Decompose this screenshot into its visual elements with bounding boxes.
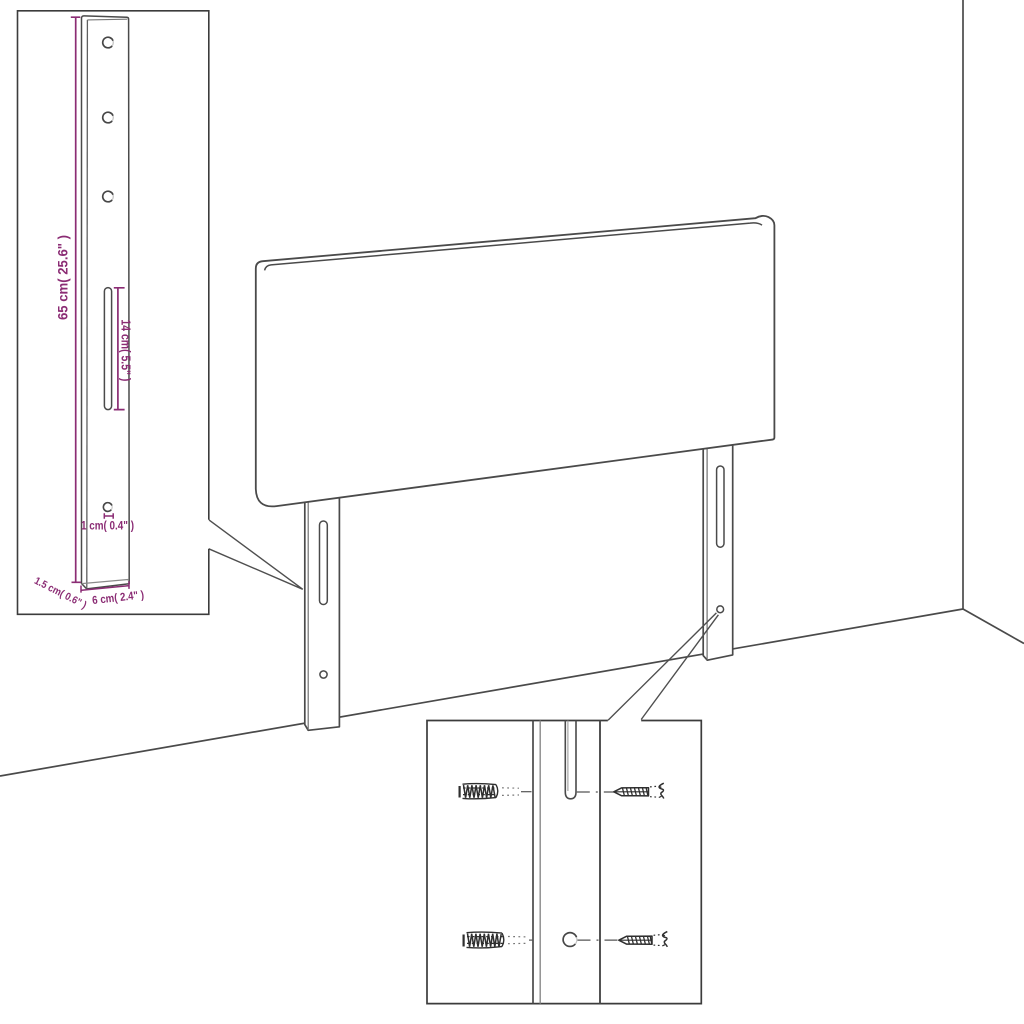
svg-text:1 cm( 0.4" ): 1 cm( 0.4" ) [81, 520, 134, 532]
svg-text:14 cm( 5.5" ): 14 cm( 5.5" ) [118, 319, 132, 381]
svg-text:65 cm( 25.6" ): 65 cm( 25.6" ) [54, 235, 70, 320]
